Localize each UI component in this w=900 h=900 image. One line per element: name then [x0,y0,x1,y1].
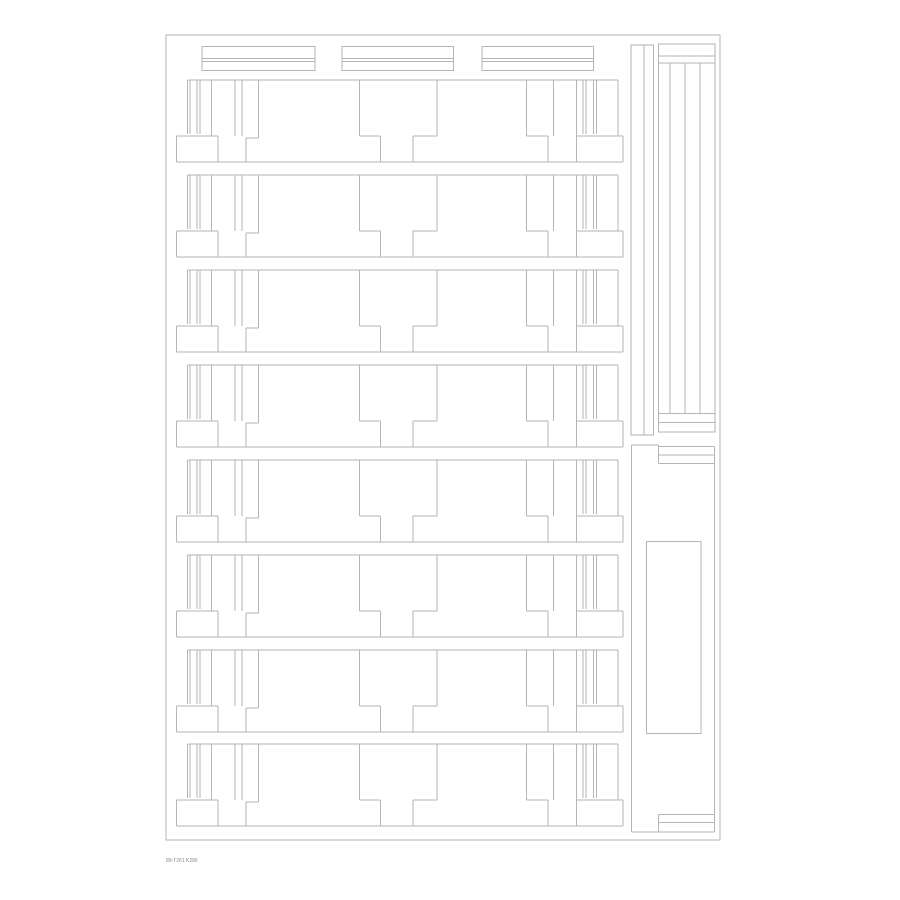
profile-row-4 [177,365,624,447]
profile-row-1 [177,80,624,162]
sheet-border [166,35,720,840]
profile-row-6 [177,555,624,637]
sheet-part-number: 89-T261 K286 [166,858,198,864]
template-sheet-page: 89-T261 K286 [0,0,900,900]
sheet-border-group [166,35,720,840]
profile-row-2 [177,175,624,257]
bottom-right-panel [632,445,715,832]
profile-row-5 [177,460,624,542]
top-strips [202,47,594,71]
side-ladder [658,44,715,432]
side-ladder-rect [658,44,715,432]
side-strip-pair-rect [631,45,654,435]
profile-row-8 [177,744,624,826]
bottom-right-panel-window [647,542,701,734]
profile-row-3 [177,270,624,352]
profile-row-7 [177,650,624,732]
sheet-drawing [0,0,900,900]
side-strip-pair [631,45,654,435]
